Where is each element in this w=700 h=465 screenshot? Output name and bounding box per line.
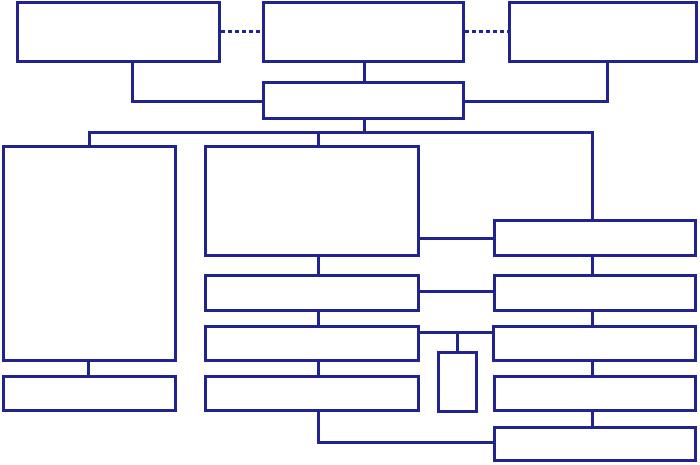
connector-center-main-to-row2 [317,257,320,274]
connector-center-row3-to-row4 [317,362,320,375]
connector-topleft-drop [131,63,134,103]
connector-bus-to-right-row1 [591,131,594,219]
connector-centerrow2-to-right2 [420,290,493,293]
box-center-row2 [204,274,420,312]
box-top-left [16,1,221,63]
connector-right2-to-right3 [591,312,594,325]
connector-topcenter-to-hub [363,63,366,81]
box-right-row3 [492,325,697,362]
box-hub [262,81,465,120]
connector-center-row2-to-row3 [317,312,320,325]
connector-right3-to-right4 [591,362,594,375]
box-right-row1 [493,219,697,257]
box-center-row3 [204,325,420,362]
connector-right4-to-right5 [591,412,594,426]
connector-left-tall-to-footer [87,362,90,375]
connector-right1-to-right2 [591,257,594,274]
box-left-footer [2,375,177,412]
connector-dashed-topcenter-topright [465,30,508,33]
connector-bus-to-center-main [317,131,320,146]
connector-bus-to-left-tall [88,131,91,146]
connector-centerrow4-drop [317,412,320,444]
box-small-vertical [437,351,478,413]
connector-topleft-to-hub [131,100,262,103]
connector-centermain-to-right1 [420,237,493,240]
box-left-tall [2,145,177,362]
box-center-main [204,145,420,257]
connector-topright-to-hub [465,100,609,103]
box-right-row5 [493,426,697,462]
box-top-center [262,1,465,63]
flowchart-canvas [0,0,700,465]
box-right-row4 [493,375,697,412]
box-top-right [508,1,698,63]
connector-dashed-topleft-topcenter [221,30,262,33]
connector-smallbox-stub [456,331,459,351]
box-right-row2 [493,274,697,312]
connector-centerrow4-to-right5 [317,441,493,444]
connector-bus [88,131,594,134]
box-center-row4 [204,375,420,412]
connector-topright-drop [606,63,609,103]
